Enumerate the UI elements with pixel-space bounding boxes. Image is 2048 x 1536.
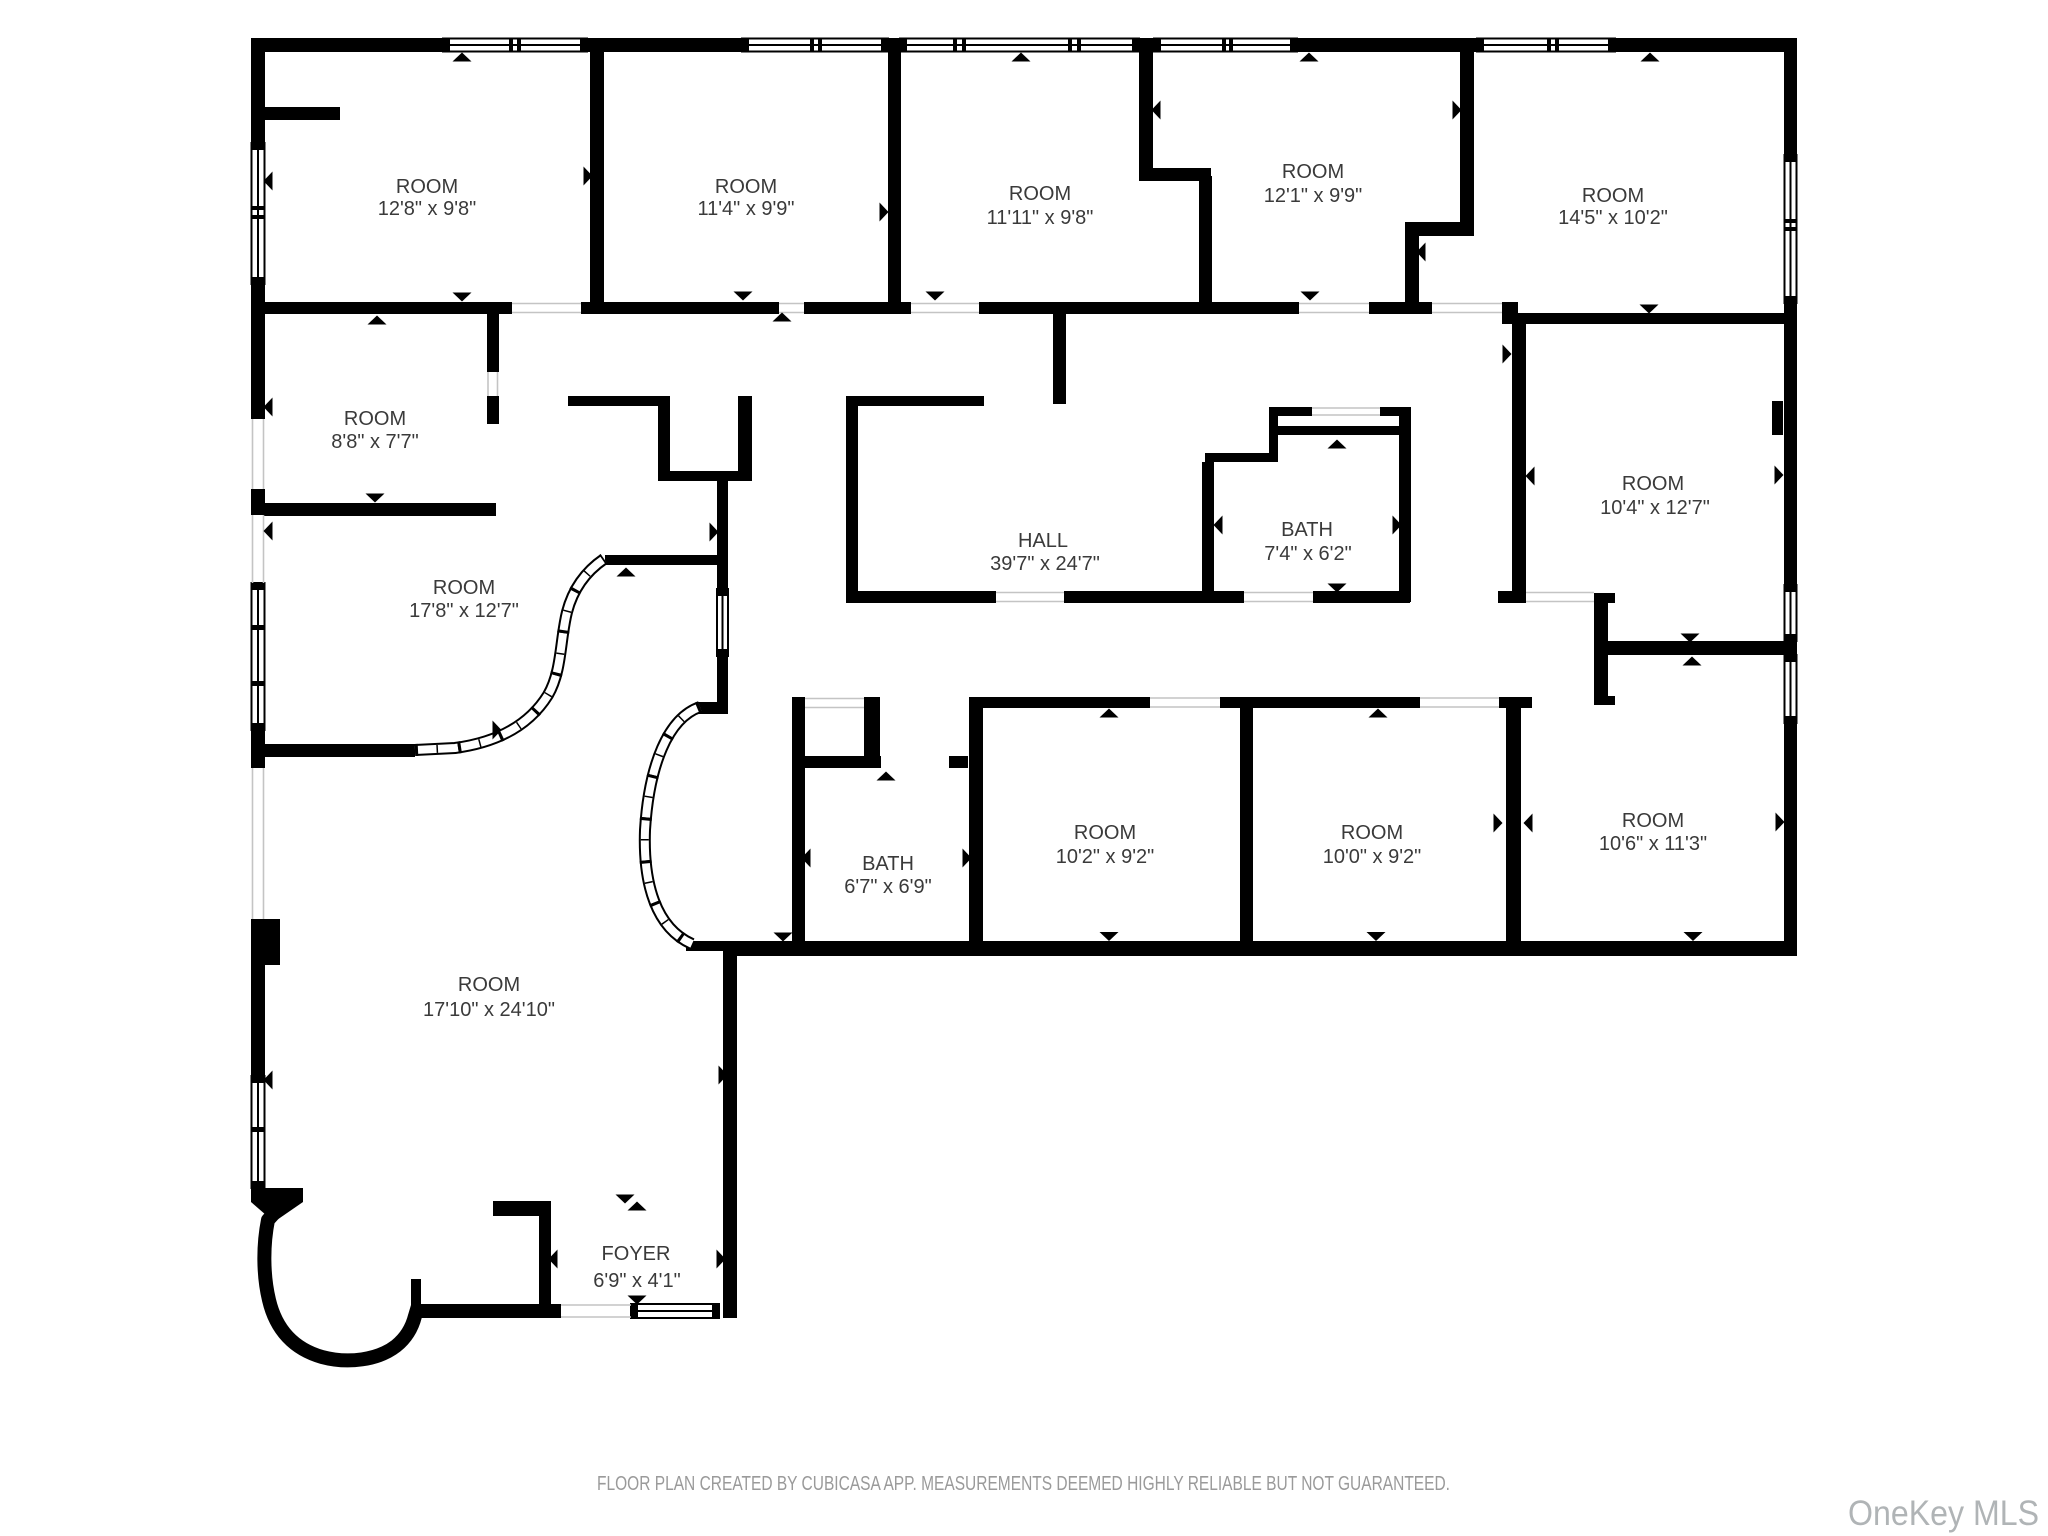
svg-text:BATH: BATH [862, 853, 914, 875]
svg-text:17'10" x 24'10": 17'10" x 24'10" [423, 999, 555, 1021]
svg-text:ROOM: ROOM [1282, 161, 1344, 183]
svg-text:39'7" x 24'7": 39'7" x 24'7" [990, 553, 1100, 575]
svg-text:ROOM: ROOM [1622, 473, 1684, 495]
svg-text:11'4" x 9'9": 11'4" x 9'9" [697, 198, 794, 220]
svg-text:ROOM: ROOM [1582, 185, 1644, 207]
svg-text:ROOM: ROOM [433, 577, 495, 599]
svg-text:ROOM: ROOM [1074, 822, 1136, 844]
svg-text:10'6" x 11'3": 10'6" x 11'3" [1599, 833, 1707, 855]
svg-text:17'8" x 12'7": 17'8" x 12'7" [409, 600, 519, 622]
svg-text:10'4" x 12'7": 10'4" x 12'7" [1600, 497, 1710, 519]
svg-text:6'7" x 6'9": 6'7" x 6'9" [844, 876, 931, 898]
svg-text:ROOM: ROOM [715, 176, 777, 198]
svg-text:HALL: HALL [1018, 530, 1068, 552]
svg-text:14'5" x 10'2": 14'5" x 10'2" [1558, 207, 1668, 229]
svg-text:OneKey MLS: OneKey MLS [1848, 1493, 2039, 1533]
svg-text:10'2" x 9'2": 10'2" x 9'2" [1056, 846, 1155, 868]
svg-text:6'9" x 4'1": 6'9" x 4'1" [593, 1270, 680, 1292]
svg-text:ROOM: ROOM [396, 176, 458, 198]
svg-text:8'8" x 7'7": 8'8" x 7'7" [331, 431, 418, 453]
svg-text:ROOM: ROOM [344, 408, 406, 430]
svg-text:ROOM: ROOM [1009, 183, 1071, 205]
svg-text:ROOM: ROOM [458, 974, 520, 996]
svg-text:BATH: BATH [1281, 519, 1333, 541]
svg-text:ROOM: ROOM [1622, 810, 1684, 832]
svg-text:12'8" x 9'8": 12'8" x 9'8" [378, 198, 477, 220]
svg-text:7'4" x 6'2": 7'4" x 6'2" [1264, 543, 1351, 565]
svg-text:10'0" x 9'2": 10'0" x 9'2" [1323, 846, 1422, 868]
svg-text:ROOM: ROOM [1341, 822, 1403, 844]
svg-text:FOYER: FOYER [602, 1243, 671, 1265]
svg-text:11'11" x 9'8": 11'11" x 9'8" [987, 207, 1094, 229]
svg-text:FLOOR PLAN CREATED BY CUBICASA: FLOOR PLAN CREATED BY CUBICASA APP. MEAS… [597, 1473, 1450, 1495]
svg-text:12'1" x 9'9": 12'1" x 9'9" [1264, 185, 1363, 207]
